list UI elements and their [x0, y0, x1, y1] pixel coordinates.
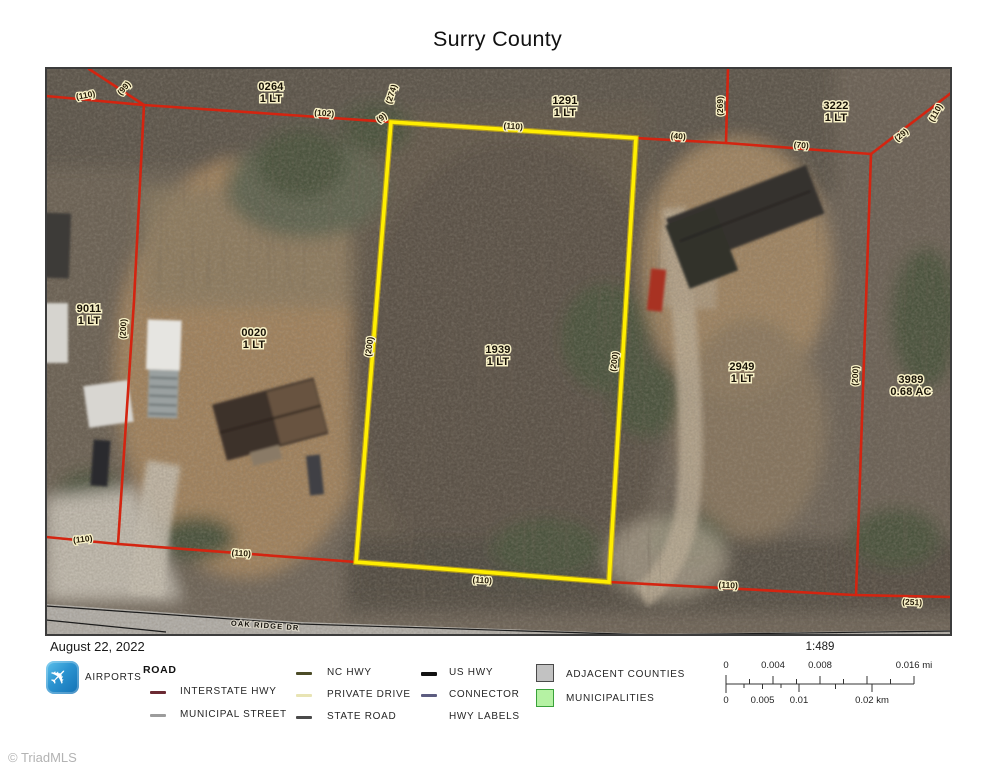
- dimension-label: (110): [472, 574, 492, 585]
- aerial-parcel-map: 02641 LT12911 LT32221 LT90111 LT00201 LT…: [46, 68, 951, 635]
- scale-tick-label: 0: [723, 695, 728, 706]
- scale-tick-label: 0.005: [751, 695, 775, 706]
- road-type-label: US HWY: [449, 667, 493, 678]
- parcel-size-label: 1 LT: [243, 339, 266, 351]
- road-type-swatch: [421, 694, 437, 697]
- area-type-swatch: [536, 664, 554, 682]
- road-type-swatch: [296, 672, 312, 675]
- map-report-page: Surry County: [0, 0, 995, 768]
- scale-tick-label: 0.004: [761, 660, 785, 671]
- scale-tick-label: 0.016 mi: [896, 660, 932, 671]
- parcel-id-label: 0264: [258, 81, 284, 93]
- dimension-label: (251): [902, 596, 923, 607]
- road-type-swatch: [296, 716, 312, 719]
- scale-mi-labels: 00.0040.0080.016 mi: [723, 660, 932, 671]
- road-type-label: NC HWY: [327, 667, 372, 678]
- airplane-glyph: ✈: [44, 661, 75, 692]
- scale-tick-label: 0: [723, 660, 728, 671]
- scale-tick-label: 0.008: [808, 660, 832, 671]
- airport-icon: ✈: [46, 661, 79, 694]
- parcel-id-label: 2949: [729, 361, 754, 373]
- parcel-size-label: 1 LT: [554, 107, 577, 119]
- map-viewport[interactable]: 02641 LT12911 LT32221 LT90111 LT00201 LT…: [45, 67, 952, 636]
- mobile-home-dark: [46, 212, 71, 278]
- scale-tick-label: 0.02 km: [855, 695, 889, 706]
- parcel-id-label: 3989: [898, 374, 923, 386]
- dimension-label: (102): [314, 107, 335, 118]
- watermark: © TriadMLS: [8, 750, 77, 765]
- parcel-size-label: 0.68 AC: [890, 386, 931, 398]
- parcel-size-label: 1 LT: [731, 373, 754, 385]
- dimension-label: (110): [231, 547, 251, 558]
- dimension-label: (40): [670, 130, 686, 141]
- dimension-label: (110): [718, 580, 738, 591]
- page-title: Surry County: [0, 27, 995, 52]
- parcel-size-label: 1 LT: [825, 112, 848, 124]
- road-type-label: INTERSTATE HWY: [180, 686, 277, 697]
- dimension-label: (110): [73, 533, 93, 545]
- scale-tick-label: 0.01: [790, 695, 809, 706]
- scale-ratio: 1:489: [706, 641, 934, 653]
- road-type-swatch: [421, 672, 437, 676]
- dimension-label: (200): [117, 319, 128, 340]
- area-type-label: ADJACENT COUNTIES: [566, 669, 685, 680]
- mobile-home-white: [46, 303, 68, 363]
- road-type-label: HWY LABELS: [449, 711, 520, 722]
- greenhouse: [144, 319, 181, 418]
- parcel-id-label: 1939: [485, 344, 510, 356]
- road-type-swatch: [150, 714, 166, 717]
- area-type-swatch: [536, 689, 554, 707]
- dimension-label: (269): [715, 96, 725, 116]
- scale-km-labels: 00.0050.010.02 km: [723, 695, 889, 706]
- road-type-label: CONNECTOR: [449, 689, 520, 700]
- area-type-label: MUNICIPALITIES: [566, 693, 655, 704]
- parcel-id-label: 1291: [552, 95, 577, 107]
- road-type-label: STATE ROAD: [327, 711, 396, 722]
- road-type-label: PRIVATE DRIVE: [327, 689, 411, 700]
- parcel-id-label: 3222: [823, 100, 848, 112]
- map-date: August 22, 2022: [50, 639, 145, 654]
- tree-streaks: [816, 118, 951, 608]
- dimension-label: (200): [849, 366, 860, 387]
- dimension-label: (70): [793, 139, 809, 150]
- road-type-swatch: [150, 691, 166, 694]
- airports-label: AIRPORTS: [85, 672, 142, 683]
- car: [90, 439, 110, 486]
- parcel-size-label: 1 LT: [260, 93, 283, 105]
- dimension-label: (110): [503, 120, 523, 131]
- road-type-label: MUNICIPAL STREET: [180, 709, 287, 720]
- road-type-swatch: [296, 694, 312, 697]
- parcel-id-label: 0020: [241, 327, 266, 339]
- road-legend-header: ROAD: [143, 664, 177, 676]
- parcel-size-label: 1 LT: [78, 315, 101, 327]
- parcel-size-label: 1 LT: [487, 356, 510, 368]
- parcel-id-label: 9011: [77, 303, 102, 315]
- scale-bar: 00.0040.0080.016 mi 00.0050.010.02 km: [706, 654, 946, 706]
